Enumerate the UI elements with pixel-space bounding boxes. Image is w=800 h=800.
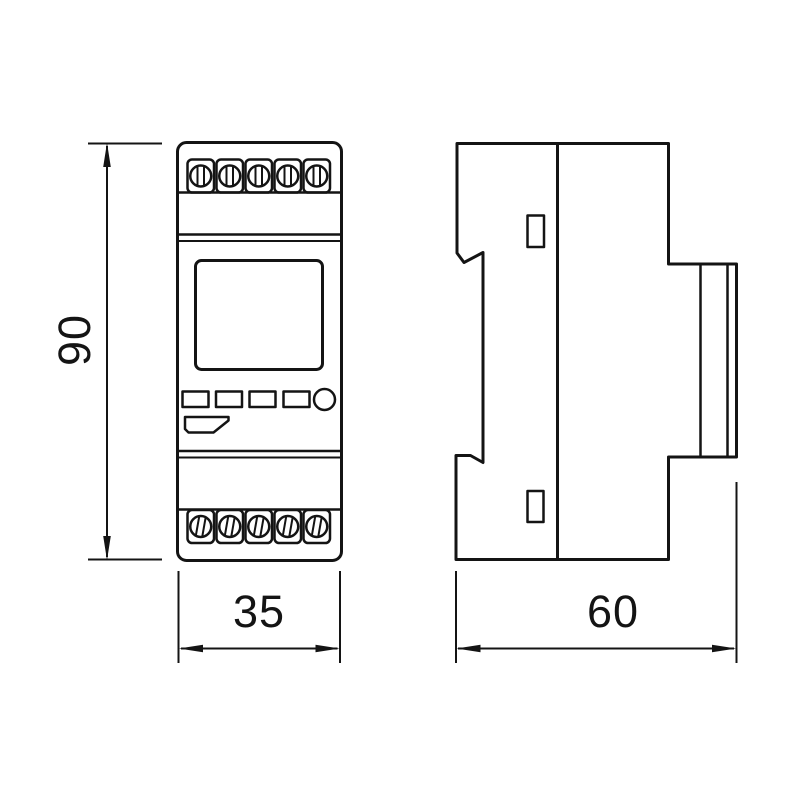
arrow-right-icon — [712, 645, 736, 653]
width-dimension-label: 35 — [233, 586, 285, 637]
technical-drawing: 90 35 60 — [0, 0, 800, 800]
dimension-width: 35 — [179, 571, 341, 663]
arrow-left-icon — [179, 645, 203, 653]
lcd-display — [196, 261, 323, 370]
arrow-down-icon — [103, 536, 111, 560]
arrow-left-icon — [456, 645, 480, 653]
front-view — [178, 143, 342, 561]
dimension-height: 90 — [49, 143, 162, 560]
depth-dimension-label: 60 — [587, 586, 639, 637]
arrow-right-icon — [316, 645, 340, 653]
drawing-canvas: 90 35 60 — [0, 0, 800, 800]
side-view — [456, 144, 737, 560]
device-body-side — [456, 144, 737, 560]
height-dimension-label: 90 — [49, 314, 100, 366]
arrow-up-icon — [103, 143, 111, 167]
